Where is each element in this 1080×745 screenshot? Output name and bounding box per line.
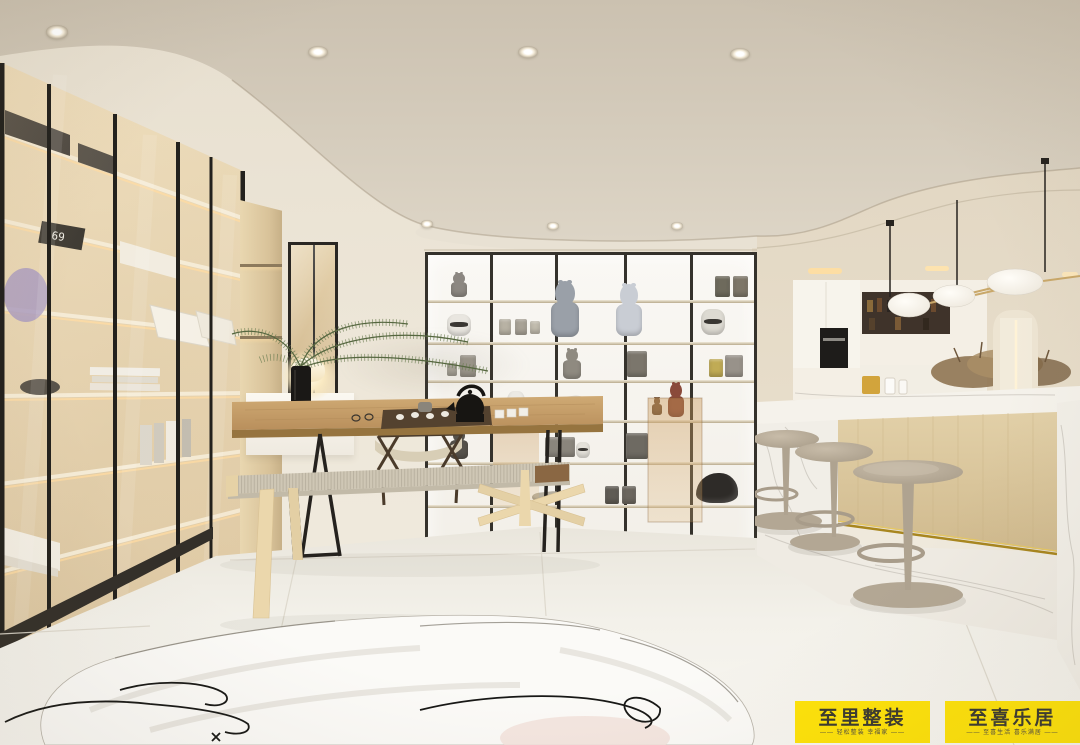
brand-slogan: —— 轻松整装 幸福家 —— [820, 730, 905, 736]
amber-glass-panel [648, 398, 702, 522]
brand-badge-left: 至里整装 —— 轻松整装 幸福家 —— [795, 701, 930, 743]
pendant-lamp [987, 269, 1043, 295]
pendant-lamp [888, 293, 930, 317]
brand-badge-right: 至喜乐居 —— 至喜生活 喜乐满居 —— [945, 701, 1080, 743]
white-quilt-cushion [0, 590, 790, 745]
brand-title: 至里整装 [818, 709, 906, 728]
pendant-lamp [933, 285, 975, 307]
niche-shelf [240, 264, 282, 267]
coffee-machine [820, 328, 848, 368]
brand-slogan: —— 至喜生活 喜乐满居 —— [966, 730, 1058, 736]
bar-counter [755, 385, 1080, 745]
brand-title: 至喜乐居 [968, 709, 1056, 728]
counter-wood-panel [838, 412, 1057, 552]
shelf-board [428, 300, 754, 303]
counter-waterfall [1057, 400, 1080, 690]
interior-room-photo: 69 [0, 0, 1080, 745]
coffee-machine-panel [823, 338, 845, 341]
tea-table-group [225, 330, 770, 630]
pendant-canopy [886, 220, 894, 226]
